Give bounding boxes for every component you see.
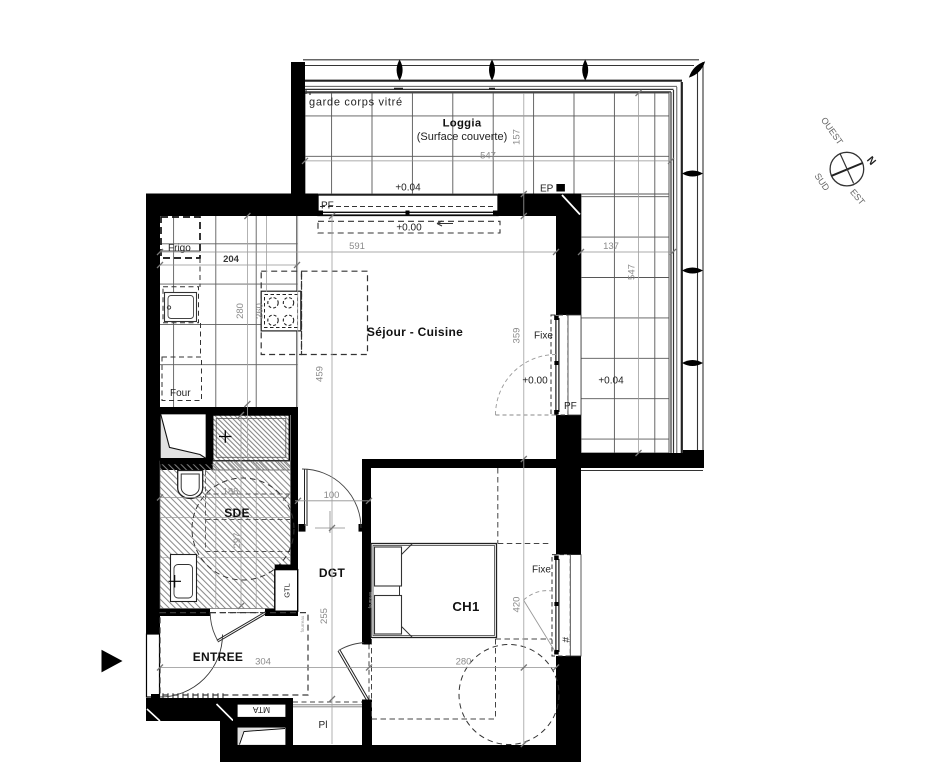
svg-text:PF: PF — [321, 201, 334, 212]
svg-text:280: 280 — [456, 657, 472, 668]
svg-text:+0.04: +0.04 — [395, 183, 421, 194]
svg-text:fourreau: fourreau — [300, 615, 305, 632]
svg-text:Séjour - Cuisine: Séjour - Cuisine — [367, 325, 463, 339]
svg-text:459: 459 — [315, 366, 326, 382]
svg-text:#: # — [560, 637, 571, 643]
svg-text:304: 304 — [255, 657, 271, 668]
svg-text:+0.00: +0.00 — [396, 223, 422, 234]
svg-text:297: 297 — [232, 533, 243, 549]
svg-text:591: 591 — [349, 241, 365, 252]
svg-text:137: 137 — [603, 241, 619, 252]
svg-text:+0.00: +0.00 — [522, 376, 548, 387]
svg-text:ENTREE: ENTREE — [193, 650, 243, 664]
svg-text:280: 280 — [235, 303, 246, 319]
svg-text:MTA: MTA — [253, 705, 271, 715]
svg-text:420: 420 — [512, 597, 523, 613]
svg-text:PF: PF — [564, 401, 577, 412]
svg-text:(Surface couverte): (Surface couverte) — [417, 131, 507, 143]
svg-text:+0.04: +0.04 — [598, 376, 624, 387]
svg-text:Four: Four — [170, 388, 191, 399]
svg-text:Fixe: Fixe — [532, 565, 551, 576]
svg-text:GTL: GTL — [283, 583, 292, 598]
svg-text:547: 547 — [480, 150, 496, 161]
svg-text:Pl: Pl — [319, 720, 328, 731]
svg-text:fourreau: fourreau — [368, 591, 373, 608]
svg-text:garde corps vitré: garde corps vitré — [309, 97, 403, 109]
svg-text:260: 260 — [255, 303, 266, 319]
svg-text:255: 255 — [319, 608, 330, 624]
svg-text:359: 359 — [512, 328, 523, 344]
svg-text:CH1: CH1 — [452, 599, 479, 614]
svg-text:157: 157 — [512, 129, 523, 145]
svg-text:204: 204 — [223, 254, 240, 265]
svg-text:Loggia: Loggia — [443, 118, 482, 130]
svg-text:Fixe: Fixe — [534, 331, 553, 342]
svg-text:547: 547 — [627, 264, 638, 280]
svg-text:EP: EP — [540, 184, 554, 195]
svg-text:SDE: SDE — [224, 506, 250, 520]
svg-text:188: 188 — [223, 487, 239, 498]
svg-text:100: 100 — [324, 490, 340, 501]
